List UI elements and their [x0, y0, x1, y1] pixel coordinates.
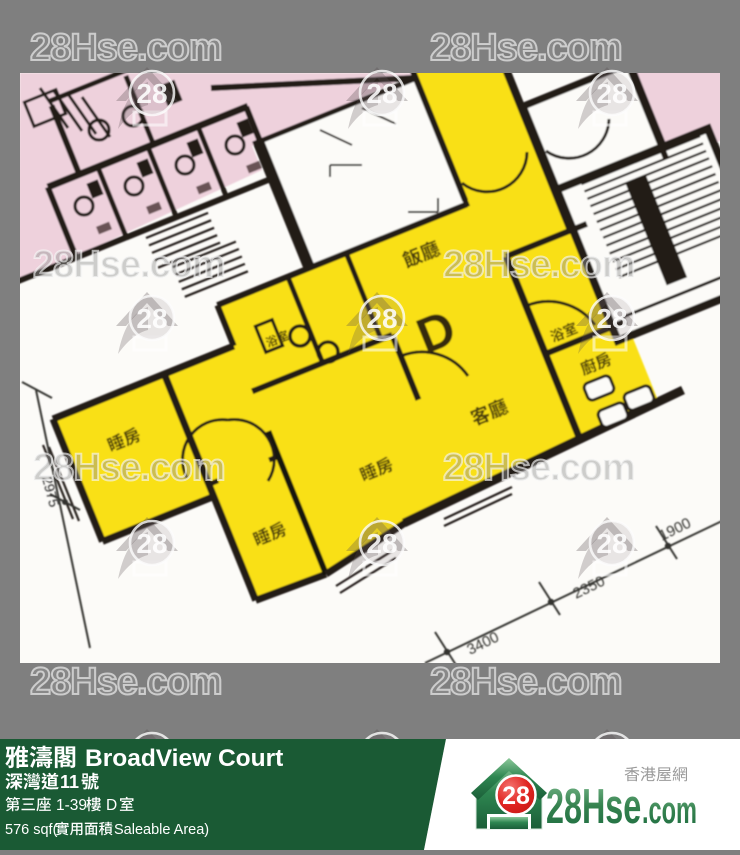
- svg-text:11: 11: [60, 772, 79, 792]
- svg-text:Saleable Area): Saleable Area): [114, 822, 209, 838]
- svg-text:28Hse.com: 28Hse.com: [33, 447, 225, 489]
- svg-text:28Hse.com: 28Hse.com: [443, 447, 635, 489]
- svg-text:.com: .com: [642, 788, 697, 831]
- svg-text:28: 28: [596, 303, 627, 334]
- svg-text:28Hse.com: 28Hse.com: [443, 244, 635, 286]
- svg-text:28: 28: [366, 303, 397, 334]
- svg-text:28: 28: [366, 78, 397, 109]
- svg-text:28: 28: [596, 78, 627, 109]
- svg-text:BroadView Court: BroadView Court: [85, 745, 283, 772]
- svg-text:28: 28: [136, 303, 167, 334]
- svg-text:28: 28: [366, 528, 397, 559]
- svg-text:1-39: 1-39: [56, 797, 87, 814]
- svg-text:576 sqf(: 576 sqf(: [5, 822, 58, 838]
- svg-text:28: 28: [136, 528, 167, 559]
- svg-text:28: 28: [136, 78, 167, 109]
- svg-text:28Hse.com: 28Hse.com: [430, 661, 622, 703]
- svg-text:28: 28: [596, 528, 627, 559]
- svg-text:28Hse.com: 28Hse.com: [33, 244, 225, 286]
- svg-text:28Hse.com: 28Hse.com: [30, 27, 222, 69]
- svg-text:28: 28: [502, 782, 530, 810]
- svg-text:28Hse.com: 28Hse.com: [30, 661, 222, 703]
- svg-text:D: D: [106, 797, 117, 814]
- svg-text:28Hse.com: 28Hse.com: [430, 27, 622, 69]
- svg-text:28Hse: 28Hse: [546, 778, 641, 833]
